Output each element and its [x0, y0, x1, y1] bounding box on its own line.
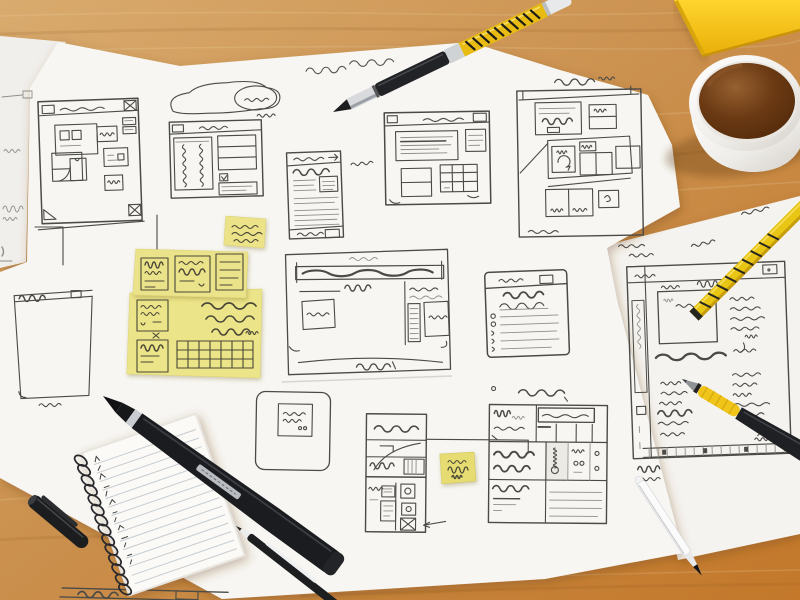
photo-wireframe-desk: [0, 0, 800, 600]
scene: [0, 0, 800, 600]
coffee-surface: [699, 63, 795, 139]
sticky-note-small: [224, 216, 266, 248]
sticky-note-flag: [440, 452, 476, 484]
sticky-note-cluster: [127, 249, 262, 378]
